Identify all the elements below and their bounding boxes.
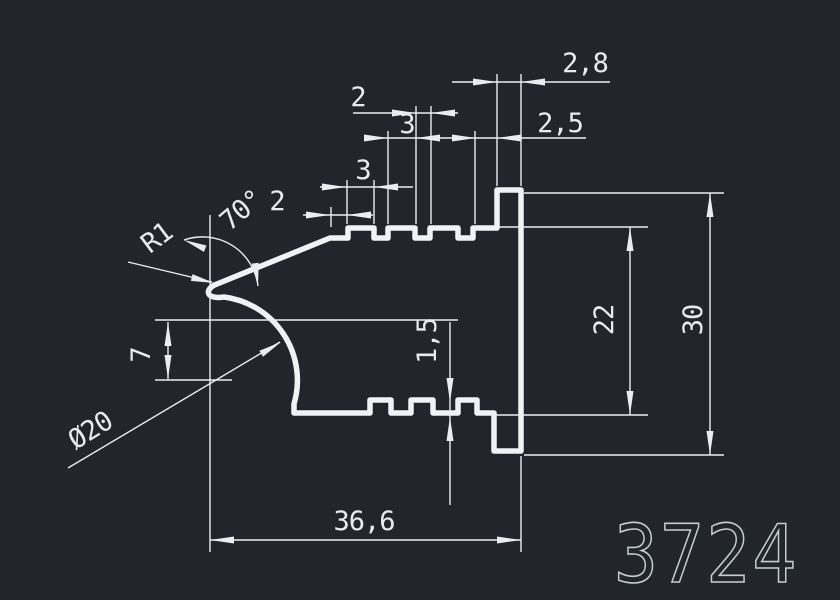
cad-drawing-viewport: 2,8 2,5 2 3 3 2 70° R1 7 Ø20 1,5 22 30 3… xyxy=(0,0,840,600)
dim-label-2-5: 2,5 xyxy=(537,108,583,139)
dim-label-2-flat: 2 xyxy=(269,186,284,217)
dim-label-30: 30 xyxy=(678,305,709,336)
cad-drawing-canvas: 2,8 2,5 2 3 3 2 70° R1 7 Ø20 1,5 22 30 3… xyxy=(0,0,840,600)
dim-label-1-5: 1,5 xyxy=(412,318,443,364)
dim-label-3-tooth1: 3 xyxy=(355,155,370,186)
dim-label-36-6: 36,6 xyxy=(333,506,394,537)
dim-label-22: 22 xyxy=(589,305,620,336)
dim-label-2-8: 2,8 xyxy=(562,48,608,79)
dim-label-2-notch: 2 xyxy=(350,82,365,113)
dim-label-3-tooth2: 3 xyxy=(399,109,414,140)
dim-label-7: 7 xyxy=(126,347,157,362)
part-number: 3724 xyxy=(614,509,799,600)
